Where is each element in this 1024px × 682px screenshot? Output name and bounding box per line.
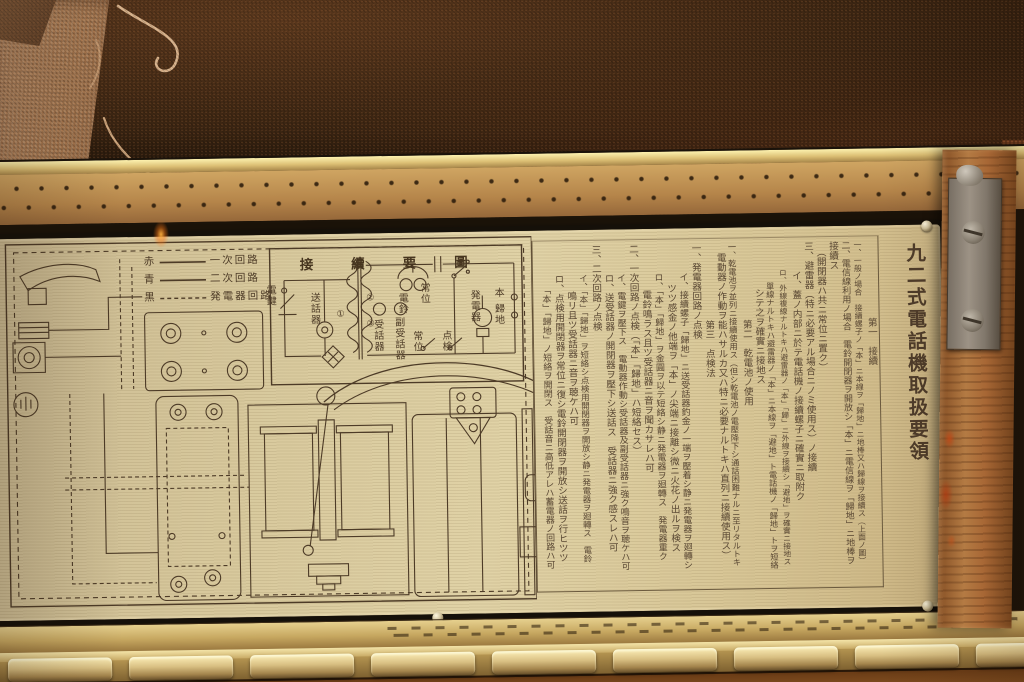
latch-pin xyxy=(956,165,983,186)
hinge-knuckle xyxy=(613,648,717,673)
label-transmitter: 送話器 xyxy=(308,292,319,325)
lid-interior: 接續要圖 赤 一次回路 青 二次回路 黒 発電器回路 電鍵 送話器 ① ② ③ … xyxy=(0,209,1024,626)
hinge-knuckle xyxy=(371,652,475,677)
schematic-title: 接續要圖 xyxy=(300,250,506,273)
hinge-knuckle xyxy=(976,642,1024,667)
label-normal-position-top: 常位 xyxy=(418,282,428,304)
canvas-strap xyxy=(0,0,130,180)
hinge-knuckle xyxy=(734,646,838,671)
vent-slots xyxy=(387,616,1017,640)
label-receiver: 受話器 xyxy=(372,319,383,352)
legend-label-secondary-circuit: 二次回路 xyxy=(210,273,260,285)
hinge-knuckle xyxy=(855,644,959,669)
label-normal-position-bottom: 常位 xyxy=(411,330,421,352)
label-bell: 電鈴 xyxy=(396,293,406,315)
label-earth-terminal: 歸地 xyxy=(492,303,502,325)
legend-mark-secondary: 青 xyxy=(144,275,157,286)
label-generator: 発電器 xyxy=(468,290,479,323)
label-telegraph-key: 電鍵 xyxy=(264,285,274,307)
label-test-position: 点検 xyxy=(440,330,450,352)
label-coil-1: ① xyxy=(336,310,346,321)
hinge-knuckle xyxy=(129,655,233,680)
plate-title: 九二式電話機取扱要領 xyxy=(876,238,933,589)
label-coil-2: ② xyxy=(366,293,376,304)
latch-screw xyxy=(962,221,985,244)
label-sub-receiver: 副受話器 xyxy=(393,317,404,361)
plate-screw xyxy=(922,600,933,611)
label-line-terminal: 本 xyxy=(492,287,502,298)
wooden-side-post xyxy=(937,150,1016,629)
instruction-text-block: 第一 接續一、一般ノ場合 接續螺子ノ「本」ニ本線ヲ「歸地」ニ地棒又ハ歸線ヲ接續ス… xyxy=(531,235,883,592)
metal-latch-plate xyxy=(946,178,1002,351)
legend-label-primary-circuit: 一次回路 xyxy=(210,255,260,267)
latch-screw xyxy=(961,309,984,332)
wiring-diagram: 接續要圖 赤 一次回路 青 二次回路 黒 発電器回路 電鍵 送話器 ① ② ③ … xyxy=(1,231,537,611)
light-reflection xyxy=(153,221,169,248)
hinge-knuckle xyxy=(492,650,596,675)
instruction-columns: 第一 接續一、一般ノ場合 接續螺子ノ「本」ニ本線ヲ「歸地」ニ地棒又ハ歸線ヲ接續ス… xyxy=(534,240,880,587)
perforation-row xyxy=(0,170,1024,192)
rust-spots xyxy=(939,418,960,558)
instruction-plate: 接續要圖 赤 一次回路 青 二次回路 黒 発電器回路 電鍵 送話器 ① ② ③ … xyxy=(0,219,951,626)
telephone-case: 接續要圖 赤 一次回路 青 二次回路 黒 発電器回路 電鍵 送話器 ① ② ③ … xyxy=(0,144,1024,682)
photo-scene: 接續要圖 赤 一次回路 青 二次回路 黒 発電器回路 電鍵 送話器 ① ② ③ … xyxy=(0,0,1024,682)
hinge-knuckle xyxy=(250,654,354,679)
strap-end-fold xyxy=(0,0,56,46)
hinge-knuckle xyxy=(8,657,112,682)
plate-screw xyxy=(921,220,932,231)
perforation-row xyxy=(0,189,1024,211)
legend-mark-primary: 赤 xyxy=(144,257,157,268)
legend-mark-generator: 黒 xyxy=(144,293,157,304)
